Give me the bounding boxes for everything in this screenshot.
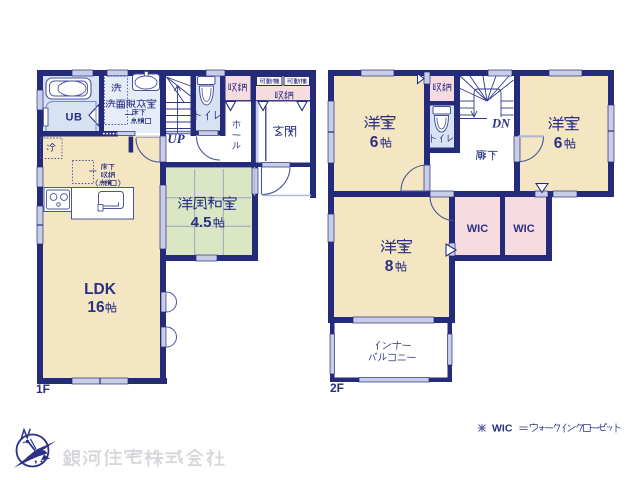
svg-text:WIC: WIC <box>467 223 488 235</box>
svg-text:UP: UP <box>167 131 185 146</box>
svg-text:WIC: WIC <box>513 223 534 235</box>
svg-text:1F: 1F <box>36 382 50 396</box>
svg-text:UB: UB <box>66 112 83 124</box>
svg-text:6: 6 <box>370 134 379 151</box>
svg-text:2F: 2F <box>330 381 344 395</box>
svg-text:LDK: LDK <box>84 281 117 298</box>
svg-text:16: 16 <box>87 299 105 316</box>
svg-text:WIC: WIC <box>492 423 513 435</box>
svg-text:8: 8 <box>385 258 394 275</box>
svg-text:6: 6 <box>554 135 563 152</box>
svg-text:4.5: 4.5 <box>191 214 212 231</box>
svg-text:DN: DN <box>491 117 511 131</box>
